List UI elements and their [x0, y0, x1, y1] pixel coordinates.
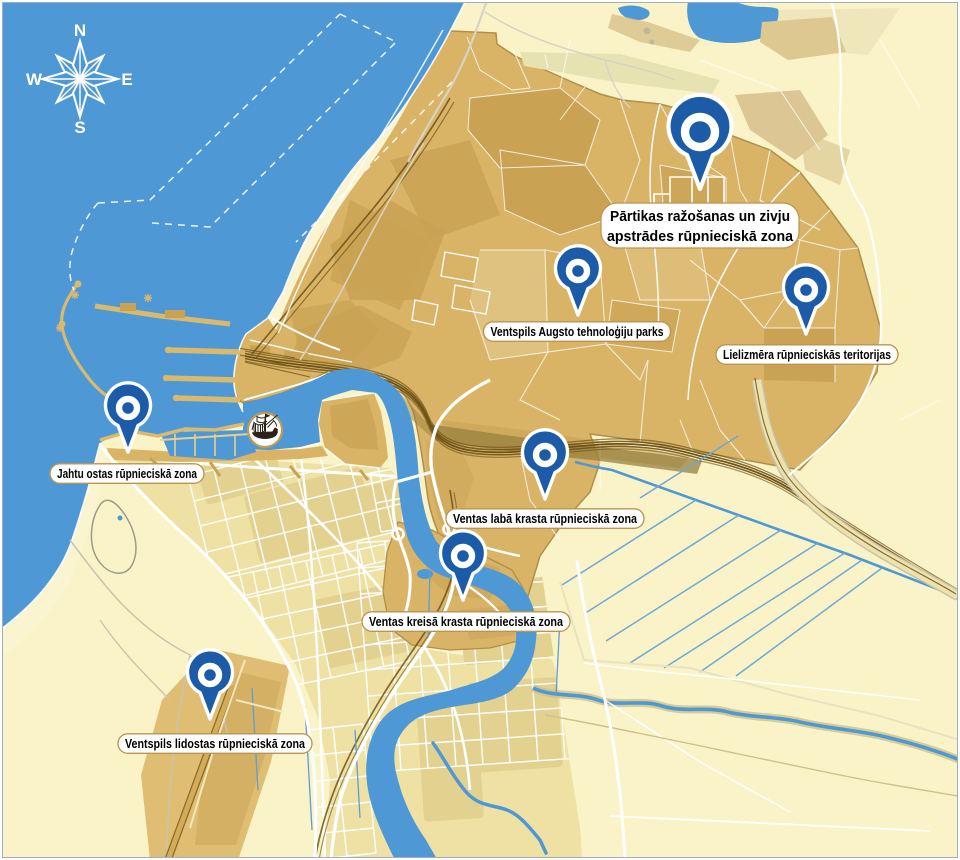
svg-text:Ventspils Augsto tehnoloģiju p: Ventspils Augsto tehnoloģiju parks	[491, 325, 664, 339]
svg-text:Lielizmēra rūpnieciskās terito: Lielizmēra rūpnieciskās teritorijas	[723, 348, 891, 362]
svg-text:S: S	[74, 118, 85, 137]
svg-text:Jahtu ostas rūpnieciskā zona: Jahtu ostas rūpnieciskā zona	[57, 467, 198, 481]
svg-text:Pārtikas ražošanas un zivju: Pārtikas ražošanas un zivju	[610, 208, 790, 225]
svg-text:N: N	[74, 21, 86, 40]
svg-text:Ventas labā krasta rūpnieciskā: Ventas labā krasta rūpnieciskā zona	[453, 512, 638, 526]
svg-text:Ventspils lidostas rūpnieciskā: Ventspils lidostas rūpnieciskā zona	[125, 737, 306, 751]
svg-text:W: W	[26, 70, 43, 89]
svg-text:Ventas kreisā krasta rūpniecis: Ventas kreisā krasta rūpnieciskā zona	[369, 615, 564, 629]
svg-text:E: E	[121, 70, 132, 89]
svg-text:apstrādes rūpnieciskā zona: apstrādes rūpnieciskā zona	[607, 228, 794, 245]
